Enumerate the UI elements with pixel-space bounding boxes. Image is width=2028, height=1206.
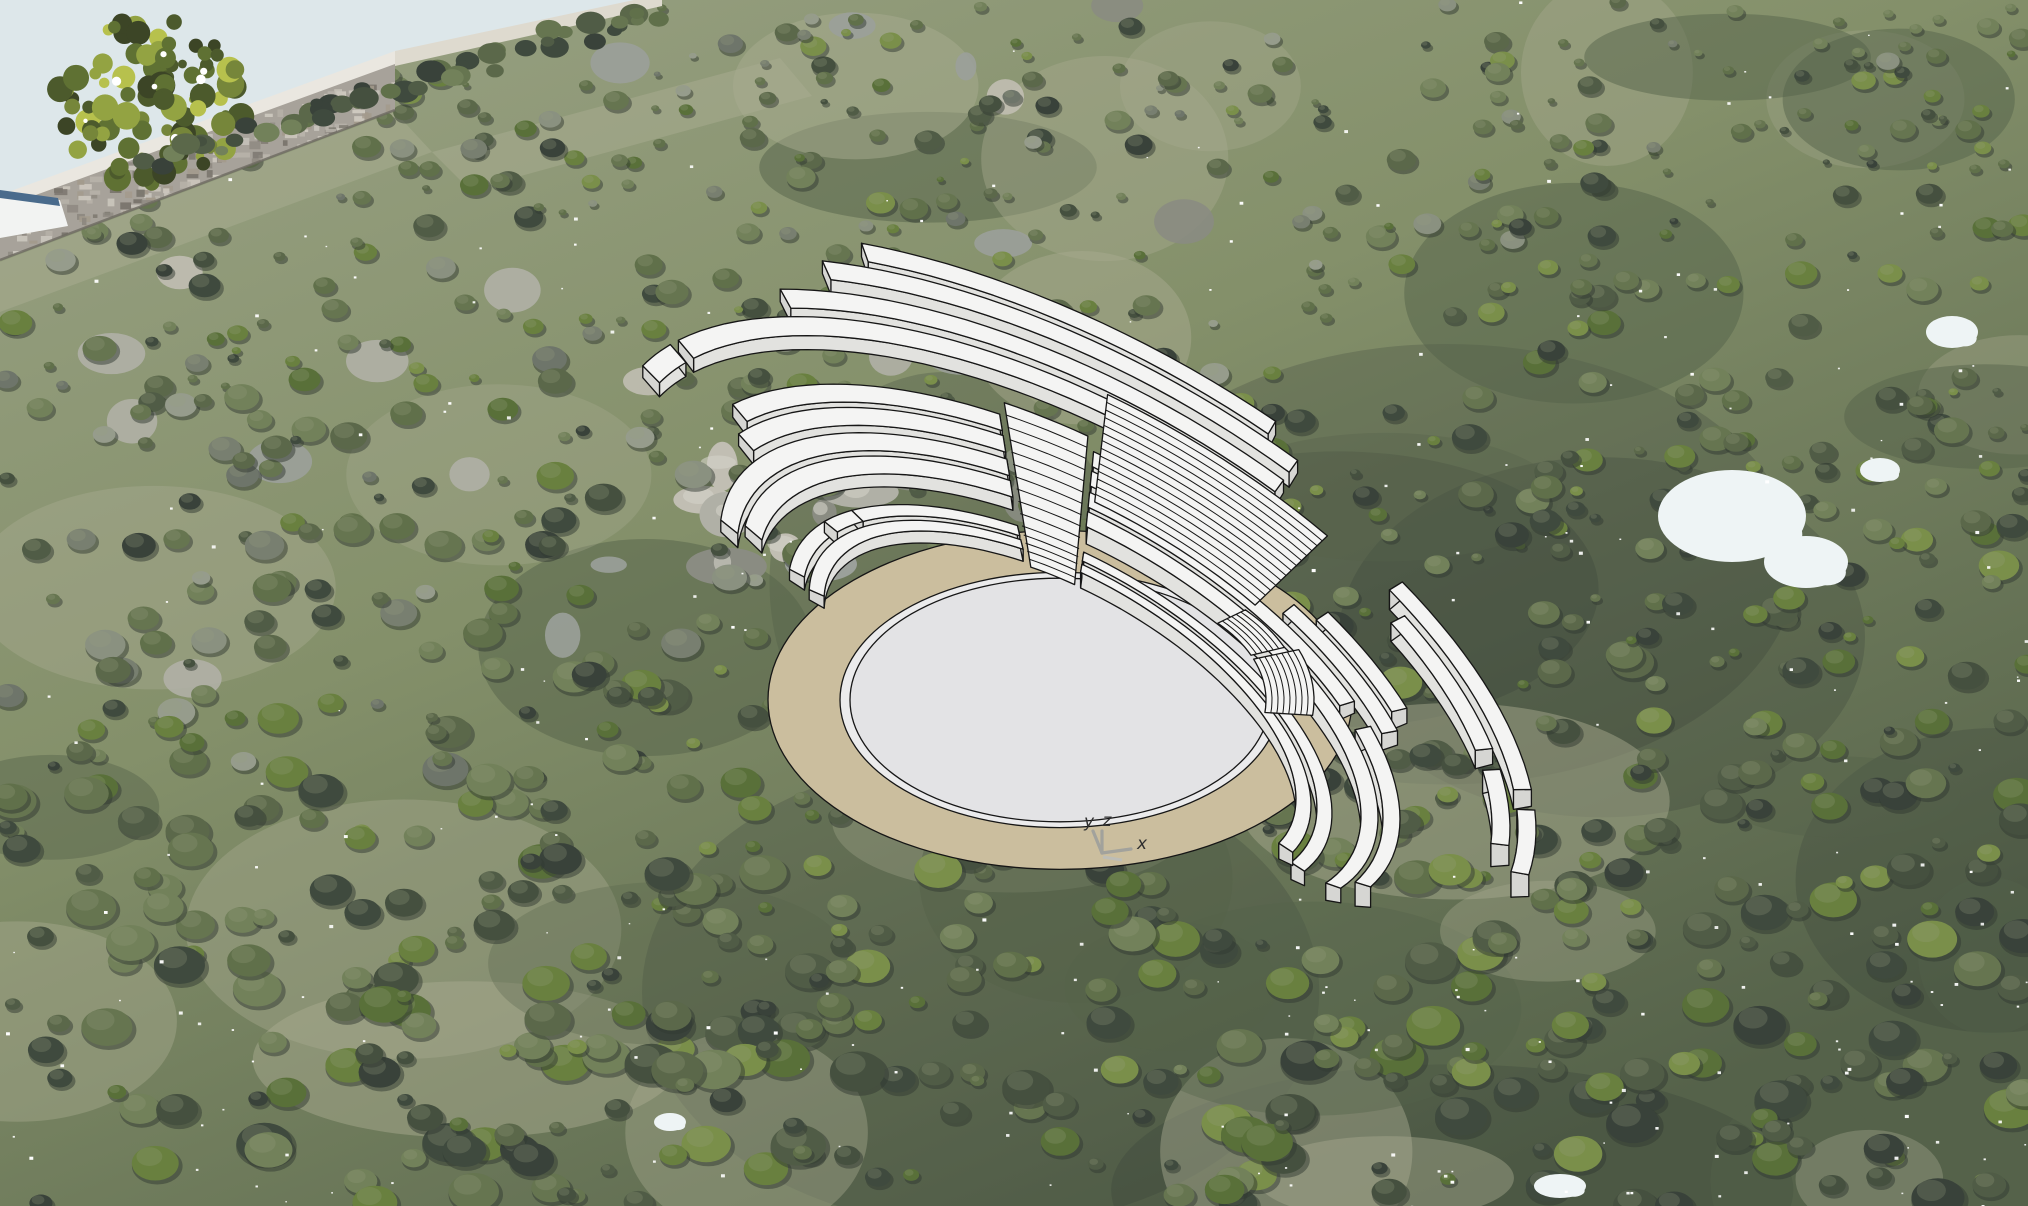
row-end-cap xyxy=(1511,872,1529,898)
axis-label-z: z xyxy=(1102,811,1113,831)
axis-label-y: y xyxy=(1083,812,1095,832)
axis-label-x: x xyxy=(1136,834,1148,854)
viewport-canvas[interactable]: yzx xyxy=(0,0,2028,1206)
row-end-cap xyxy=(1491,843,1509,866)
viewport-3d[interactable]: yzx xyxy=(0,0,2028,1206)
row-end-cap xyxy=(1514,790,1532,810)
